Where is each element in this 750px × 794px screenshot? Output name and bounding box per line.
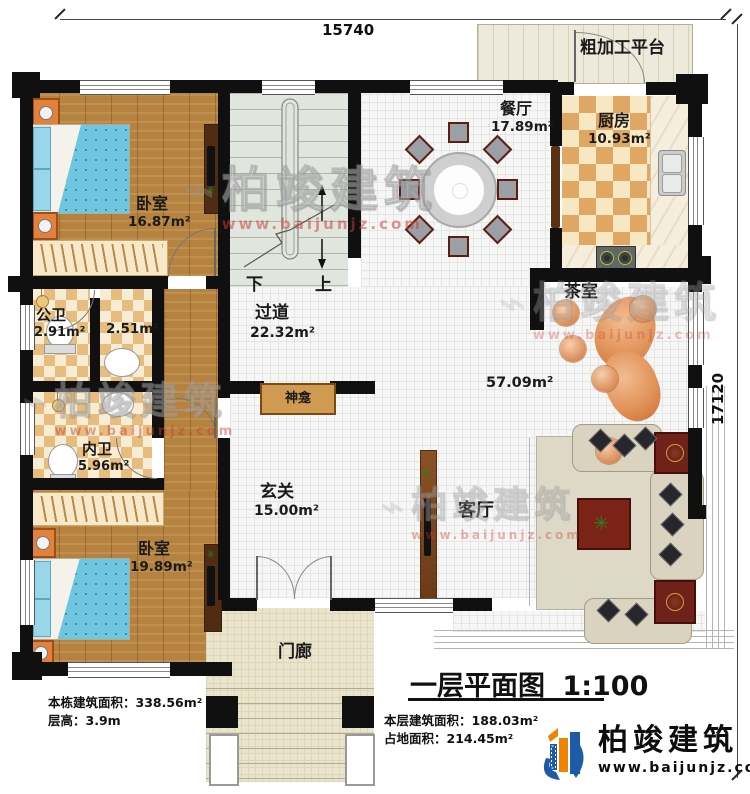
wall	[330, 381, 375, 394]
table-ring-icon	[666, 444, 684, 462]
window	[410, 80, 503, 95]
nightstand	[30, 528, 56, 558]
wall	[90, 298, 100, 382]
plant-icon: ✳	[421, 466, 431, 480]
entry-door-leaf	[330, 556, 332, 600]
room-area-bedroom1: 16.87m²	[128, 215, 191, 229]
tv-icon	[207, 146, 215, 186]
floor-plan: 粗加工平台 ✳	[0, 0, 750, 794]
room-area-bedroom2: 19.89m²	[130, 560, 193, 574]
door-leaf-bedroom2	[214, 398, 216, 438]
floor-area-label: 本层建筑面积：	[384, 713, 472, 728]
dimension-line-right	[737, 24, 738, 778]
tv-icon	[207, 566, 215, 606]
wall	[20, 662, 68, 676]
dimension-tick	[54, 8, 65, 19]
washbasin	[104, 348, 140, 377]
burner-icon	[618, 251, 632, 265]
room-area-public-bath: 2.91m²	[34, 326, 85, 340]
wall	[550, 84, 562, 146]
burner-icon	[600, 251, 614, 265]
porch-pillar	[206, 696, 238, 728]
hall-area-label: 57.09m²	[486, 376, 553, 391]
building-area-label: 本栋建筑面积：	[48, 695, 136, 710]
stair-label-down: 下	[246, 277, 263, 295]
plant-icon: ✳	[206, 548, 215, 561]
window	[262, 80, 315, 95]
porch-column-base	[345, 734, 375, 786]
dining-chair	[448, 236, 469, 257]
door-leaf-bedroom1	[214, 228, 216, 276]
room-label-kitchen: 厨房	[598, 113, 630, 130]
brand-url: www.baijunjz.com	[598, 760, 750, 776]
building-area-value: 338.56m²	[136, 695, 203, 710]
bed	[30, 124, 130, 214]
kitchen-door-leaf	[551, 146, 560, 228]
window	[80, 80, 170, 95]
stats-floor: 本层建筑面积：188.03m² 占地面积：214.45m²	[384, 712, 538, 748]
wall	[20, 276, 168, 289]
wall	[542, 268, 702, 282]
room-area-washroom: 2.51m²	[106, 322, 159, 336]
room-area-inner-bath: 5.96m²	[78, 460, 129, 474]
bed-pillow	[33, 127, 51, 169]
room-label-bedroom2: 卧室	[138, 541, 170, 558]
tea-stool	[630, 296, 656, 322]
dimension-right-value: 17120	[709, 369, 727, 429]
shower-cord	[57, 392, 58, 401]
wardrobe	[32, 240, 168, 276]
stair-label-up: 上	[315, 277, 332, 295]
bed	[30, 558, 130, 640]
dining-table-center	[452, 183, 468, 199]
wardrobe	[32, 492, 164, 526]
porch-column-base	[209, 734, 239, 786]
wall	[152, 276, 164, 438]
footprint-value: 214.45m²	[447, 731, 514, 746]
hanger-rods	[37, 244, 163, 272]
room-area-foyer: 15.00m²	[254, 504, 319, 519]
room-area-corridor: 22.32m²	[250, 326, 315, 341]
wall	[688, 80, 702, 137]
window	[68, 662, 170, 678]
room-area-dining: 17.89m²	[491, 120, 554, 134]
bed-pillow	[33, 169, 51, 211]
dimension-tick	[731, 13, 742, 24]
wall	[20, 381, 162, 392]
window	[20, 560, 35, 625]
wall-corner	[8, 276, 20, 292]
floor-area-value: 188.03m²	[472, 713, 539, 728]
room-label-corridor: 过道	[255, 305, 289, 323]
sink-basin	[662, 154, 682, 173]
title-underline	[408, 698, 604, 701]
brand-logo-icon	[534, 724, 590, 782]
window	[688, 388, 704, 428]
sink-basin	[662, 174, 682, 193]
lamp-icon	[39, 106, 53, 120]
wall	[170, 80, 262, 93]
wall	[170, 662, 232, 676]
brand-name: 柏竣建筑	[598, 723, 738, 758]
door-leaf-platform	[574, 30, 576, 82]
wall	[206, 276, 218, 289]
room-label-tea: 茶室	[564, 284, 598, 302]
plant-icon: ✳	[206, 184, 215, 197]
table-ring-icon	[666, 593, 684, 611]
dining-chair	[497, 179, 518, 200]
lamp-icon	[36, 536, 50, 550]
porch-pillar	[342, 696, 374, 728]
window	[20, 305, 35, 350]
floor-height-value: 3.9m	[86, 713, 121, 728]
room-area-kitchen: 10.93m²	[588, 132, 651, 146]
wall	[20, 478, 164, 490]
wall	[20, 350, 33, 403]
dining-table	[421, 152, 497, 228]
wall	[453, 598, 492, 611]
window	[688, 137, 704, 225]
bed-pillow	[33, 561, 51, 599]
room-label-shrine: 神龛	[285, 392, 311, 406]
stats-building: 本栋建筑面积：338.56m² 层高：3.9m	[48, 694, 202, 730]
room-label-dining: 餐厅	[500, 101, 532, 118]
room-label-living: 客厅	[458, 502, 494, 521]
lamp-icon	[38, 219, 52, 233]
tea-stool	[592, 366, 618, 392]
dining-chair	[448, 122, 469, 143]
brand-logo: 柏竣建筑 www.baijunjz.com	[534, 724, 750, 782]
dining-chair	[399, 179, 420, 200]
dimension-top-value: 15740	[322, 21, 374, 39]
window	[688, 292, 704, 365]
toilet-tank	[44, 344, 76, 354]
footprint-label: 占地面积：	[384, 731, 447, 746]
toilet	[48, 444, 78, 478]
coffee-table: ✳	[577, 498, 631, 550]
wall	[20, 80, 33, 305]
wall	[20, 455, 33, 560]
wall	[315, 80, 410, 93]
wall	[218, 438, 230, 600]
shower-head-icon	[52, 399, 65, 412]
wall-corner	[688, 505, 706, 519]
window	[375, 598, 453, 613]
window	[20, 403, 35, 455]
tv-icon	[424, 498, 431, 556]
dimension-line-top	[60, 19, 726, 20]
entry-door-leaf	[256, 556, 258, 600]
wall	[348, 80, 361, 258]
rug-fringe	[529, 438, 535, 606]
room-label-inner-bath: 内卫	[82, 442, 112, 458]
room-label-bedroom1: 卧室	[136, 196, 168, 213]
washbasin	[102, 392, 134, 417]
tea-stool	[553, 300, 579, 326]
room-label-platform: 粗加工平台	[580, 40, 665, 58]
wall	[688, 365, 702, 388]
stair-detail	[230, 93, 348, 287]
room-label-foyer: 玄关	[260, 484, 294, 502]
bed-pillow	[33, 599, 51, 637]
shrine-cabinet: 神龛	[260, 383, 336, 415]
wall	[330, 598, 375, 611]
nightstand	[32, 212, 58, 240]
room-label-public-bath: 公卫	[36, 308, 66, 324]
wall	[222, 381, 264, 394]
stove	[596, 246, 636, 269]
side-table	[654, 580, 696, 624]
tea-stool	[560, 336, 586, 362]
kitchen-sink	[658, 150, 686, 196]
shower-cord	[41, 289, 42, 297]
plant-icon: ✳	[593, 511, 610, 535]
wall	[222, 598, 257, 611]
dimension-tick	[720, 8, 731, 19]
hanger-rods	[37, 496, 159, 522]
room-label-porch: 门廊	[278, 644, 312, 662]
floor-height-label: 层高：	[48, 713, 86, 728]
wall	[218, 80, 230, 398]
